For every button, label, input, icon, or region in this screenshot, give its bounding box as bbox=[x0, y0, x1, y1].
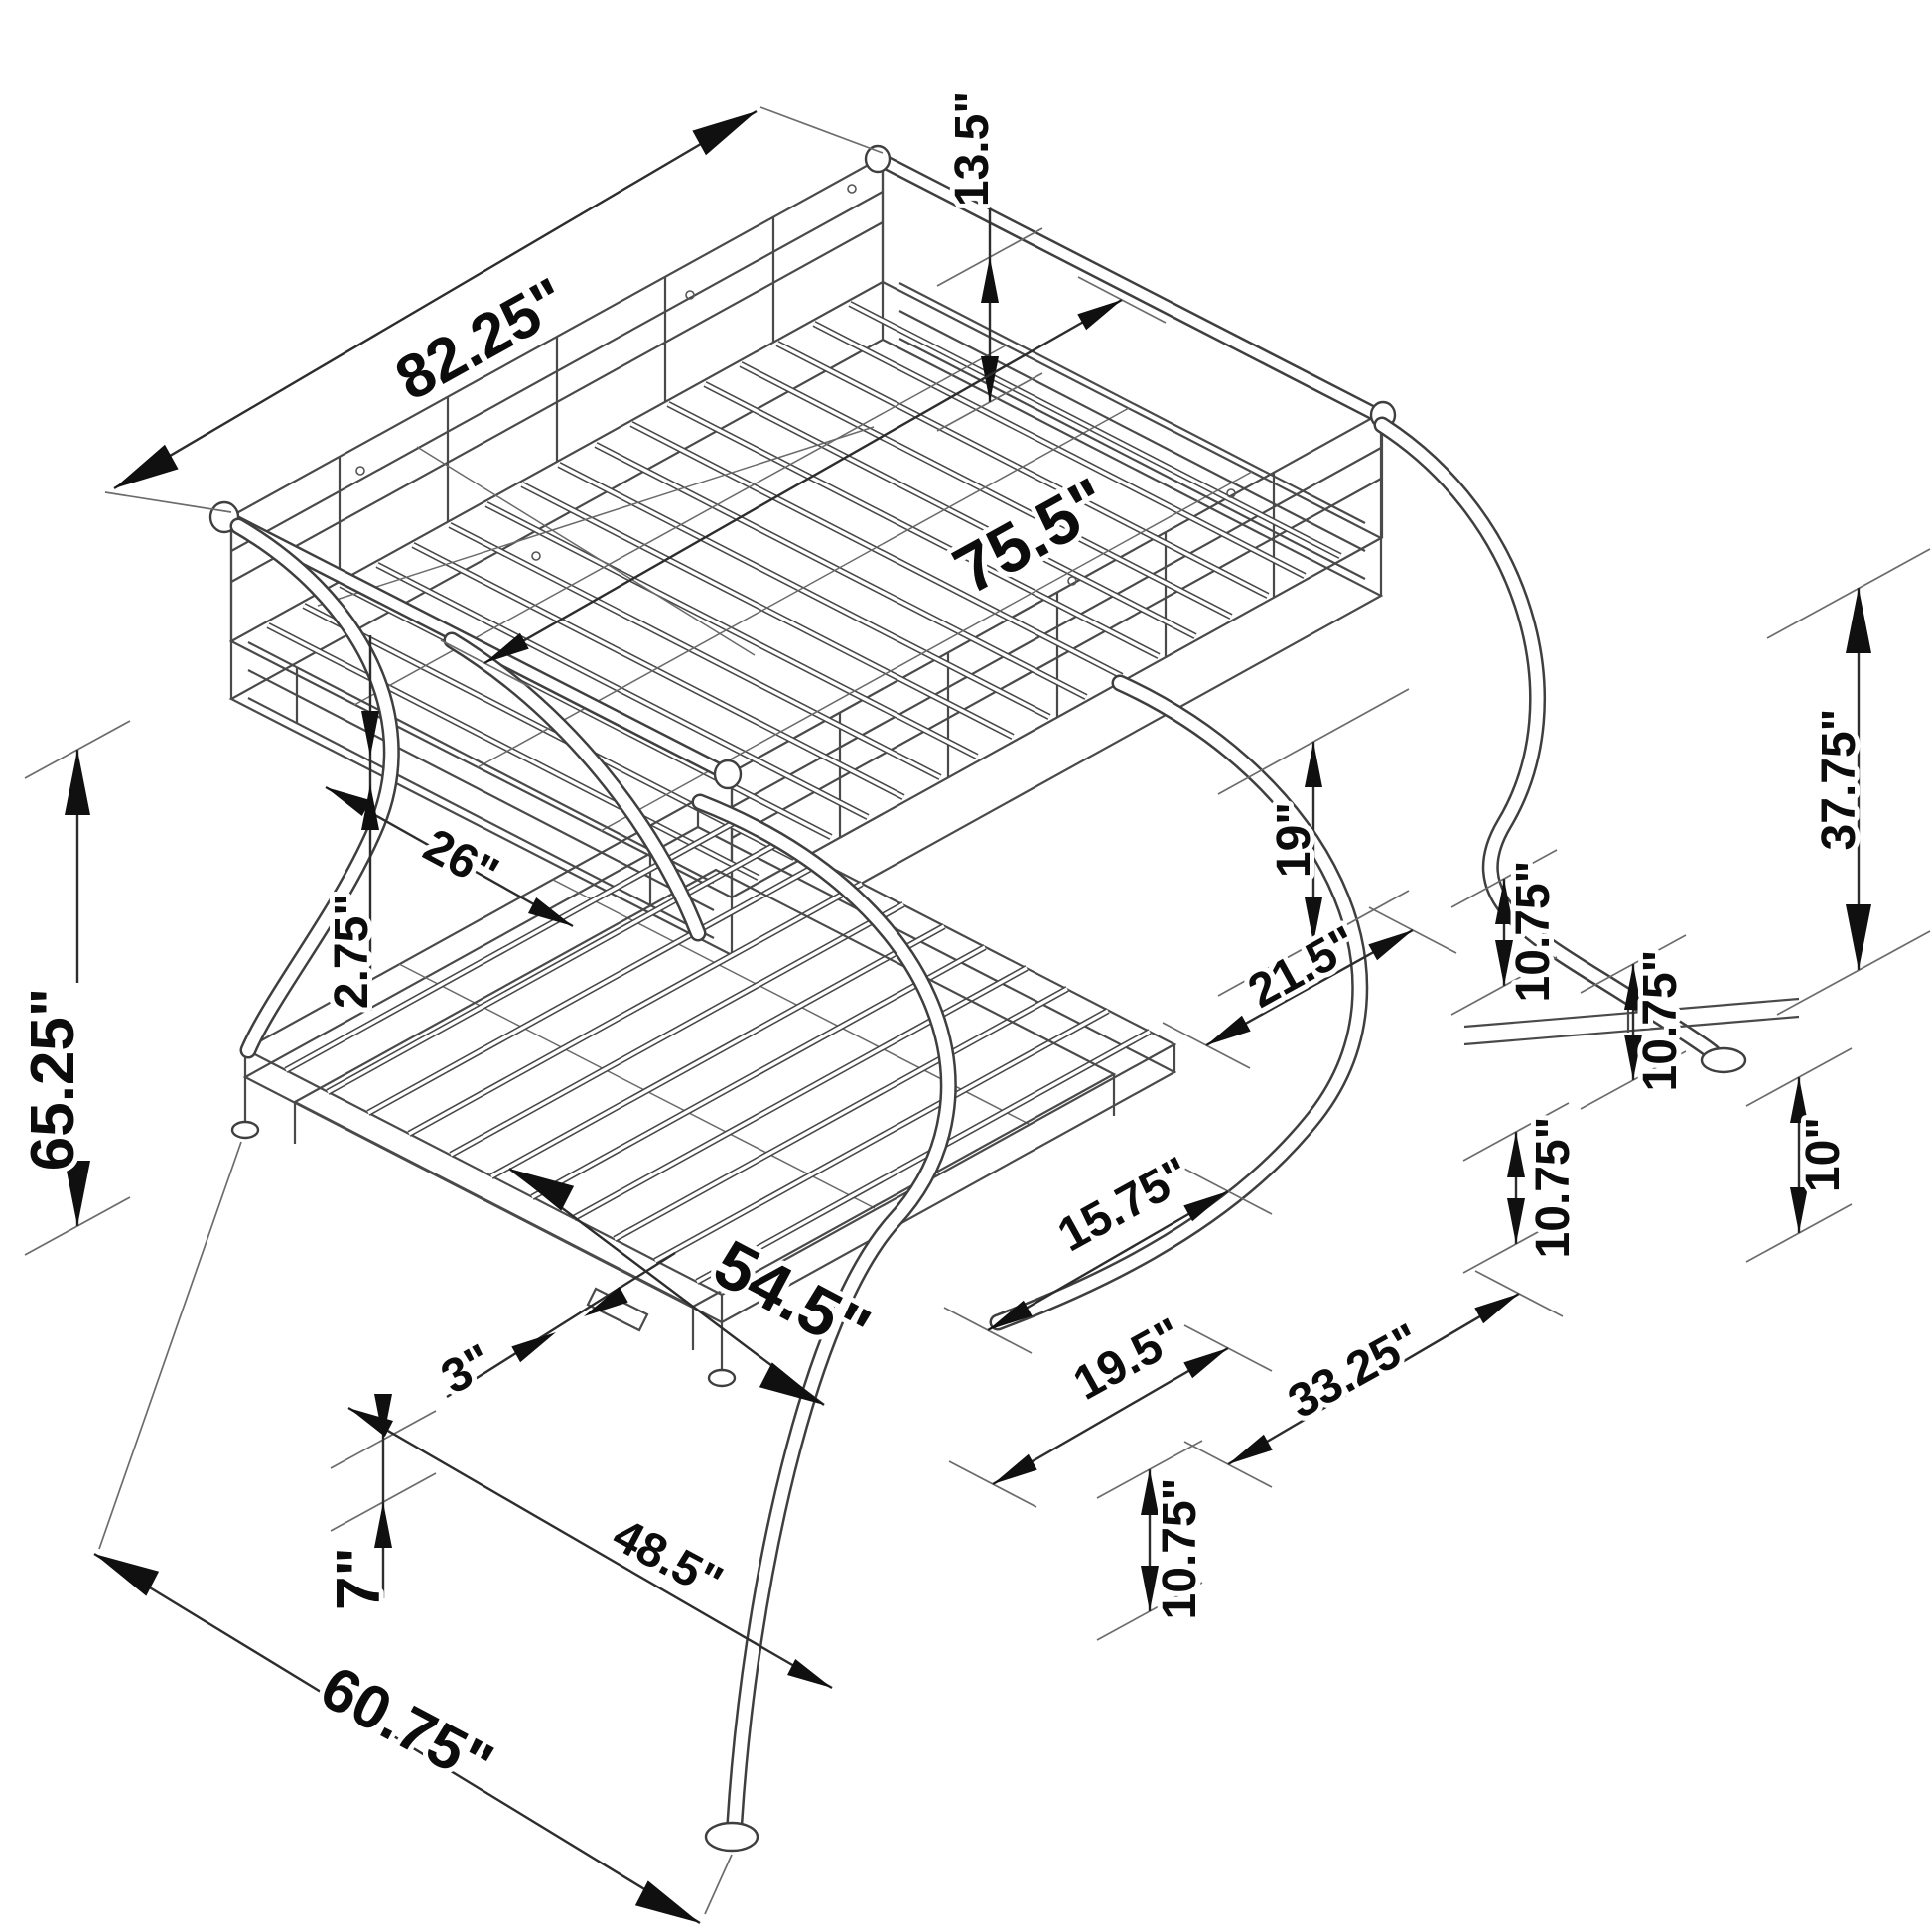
dimension-label-overall-width: 60.75" bbox=[310, 1653, 503, 1800]
dimension-leg-offset-upper-b: 10.75" bbox=[1581, 935, 1687, 1109]
dimension-label-headboard-panel: 26" bbox=[415, 819, 506, 901]
dimension-label-leg-offset-upper-b: 10.75" bbox=[1634, 950, 1687, 1092]
bed-structure bbox=[210, 146, 1799, 1851]
dimension-label-rail-gap: 2.75" bbox=[326, 894, 378, 1009]
dimension-label-shelf-height: 10" bbox=[1797, 1117, 1850, 1192]
dimension-label-trundle-height: 7" bbox=[325, 1547, 393, 1610]
dimension-label-rear-leg-span: 19.5" bbox=[1065, 1309, 1191, 1411]
dimension-label-overall-height: 65.25" bbox=[19, 988, 87, 1172]
bunk-bed-dimension-diagram: 82.25" 13.5" 75.5" 26" bbox=[0, 0, 1932, 1932]
dimension-leg-offset-lower: 10.75" bbox=[1463, 1103, 1580, 1273]
dimension-label-trundle-width: 48.5" bbox=[605, 1509, 731, 1609]
dimension-label-overall-length: 82.25" bbox=[385, 265, 579, 414]
dimension-overall-height: 65.25" bbox=[19, 721, 130, 1255]
dimension-slat-spacing: 3" bbox=[433, 1253, 675, 1405]
dimension-rail-gap: 2.75" bbox=[326, 635, 379, 1011]
dimension-label-leg-offset-lower: 10.75" bbox=[1527, 1117, 1580, 1259]
dimension-base-section-length: 33.25" bbox=[1184, 1271, 1563, 1487]
dimension-rear-leg-span: 19.5" bbox=[949, 1309, 1272, 1507]
dimension-rail-to-deck: 13.5" bbox=[937, 91, 1042, 431]
dimension-label-leg-offset-upper-a: 10.75" bbox=[1507, 861, 1560, 1003]
dimension-label-base-deck-height: 10.75" bbox=[1154, 1478, 1206, 1620]
dimension-label-bunk-clearance: 19" bbox=[1268, 802, 1320, 878]
dimension-leg-offset-upper-a: 10.75" bbox=[1451, 850, 1560, 1015]
dimension-label-slat-spacing: 3" bbox=[433, 1334, 501, 1404]
dimension-label-under-deck-clearance: 37.75" bbox=[1813, 709, 1865, 851]
dimension-trundle-width: 48.5" bbox=[348, 1408, 832, 1688]
dimension-label-futon-width: 54.5" bbox=[702, 1226, 882, 1369]
dimension-shelf-height: 10" bbox=[1746, 1048, 1852, 1262]
dimension-label-base-section-length: 33.25" bbox=[1280, 1314, 1430, 1430]
dimension-leg-span-upper: 21.5" bbox=[1163, 907, 1456, 1068]
dimension-under-deck-clearance: 37.75" bbox=[1767, 549, 1930, 1015]
dimension-label-leg-span-upper: 21.5" bbox=[1240, 916, 1366, 1019]
technical-drawing-canvas: 82.25" 13.5" 75.5" 26" bbox=[0, 0, 1932, 1932]
dimension-base-deck-height: 10.75" bbox=[1097, 1441, 1206, 1640]
dimension-label-rail-to-deck: 13.5" bbox=[946, 91, 999, 207]
c-leg-right bbox=[1382, 425, 1745, 1072]
